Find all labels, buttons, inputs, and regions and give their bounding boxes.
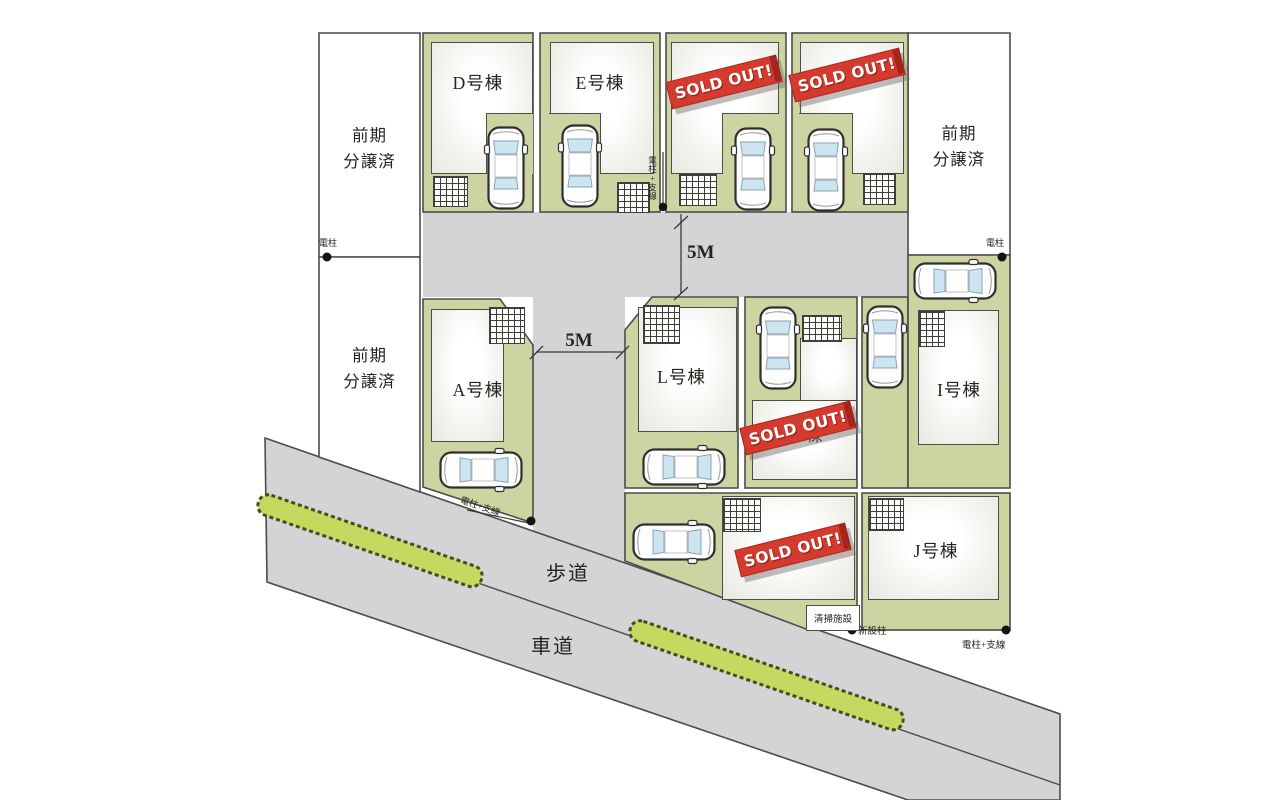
lot-g-driveway-notch — [799, 113, 853, 174]
lot-j-label: J号棟 — [862, 538, 1010, 563]
lot-e-hatch — [617, 182, 650, 213]
lot-center-house-upper — [800, 338, 857, 404]
roadway-label: 車道 — [531, 630, 575, 659]
presold-label-left-bottom: 前期 分譲済 — [319, 343, 420, 396]
cleaning-facility-label: 清掃施設 — [814, 611, 852, 625]
lot-a-label: A号棟 — [423, 377, 533, 402]
lot-center-hatch — [802, 315, 842, 342]
lot-f-driveway-notch — [722, 113, 779, 174]
presold-label-left-top: 前期 分譲済 — [319, 123, 420, 176]
cleaning-facility-box: 清掃施設 — [806, 605, 860, 631]
lot-j-hatch — [869, 498, 904, 531]
presold-label-right: 前期 分譲済 — [908, 121, 1010, 174]
lot-l-label: L号棟 — [625, 364, 738, 389]
lot-e-label: E号棟 — [540, 70, 660, 95]
pole-label-left: 電柱 — [319, 236, 337, 249]
site-plan: D号棟 E号棟 A号棟 L号棟 I号棟 J号棟 棟 前期 分譲済 前期 分譲済 … — [0, 0, 1280, 800]
pole-wire-label-top: 電柱+支線 — [648, 156, 657, 210]
lot-bottom-center-hatch — [723, 498, 761, 532]
lot-i-hatch — [919, 311, 945, 347]
lot-d-hatch — [433, 176, 468, 207]
horizontal-road — [423, 212, 908, 297]
road-width-top-label: 5M — [687, 242, 714, 264]
lot-f-hatch — [679, 174, 717, 206]
new-pole-label: 新設柱 — [858, 623, 887, 637]
lot-e-driveway-notch — [549, 113, 601, 174]
lot-d-driveway-notch — [486, 113, 533, 174]
lot-d-label: D号棟 — [423, 70, 533, 95]
lot-l-hatch — [643, 305, 680, 344]
lot-a-hatch — [489, 307, 525, 344]
sidewalk-label: 歩道 — [546, 557, 590, 586]
driveway-strip-parcel — [862, 297, 908, 488]
lot-i-label: I号棟 — [908, 377, 1010, 402]
road-width-center-label: 5M — [547, 330, 611, 352]
pole-label-right: 電柱 — [986, 236, 1004, 249]
pole-wire-label-bottom: 電柱+支線 — [962, 637, 1038, 651]
lot-g-hatch — [863, 173, 896, 205]
